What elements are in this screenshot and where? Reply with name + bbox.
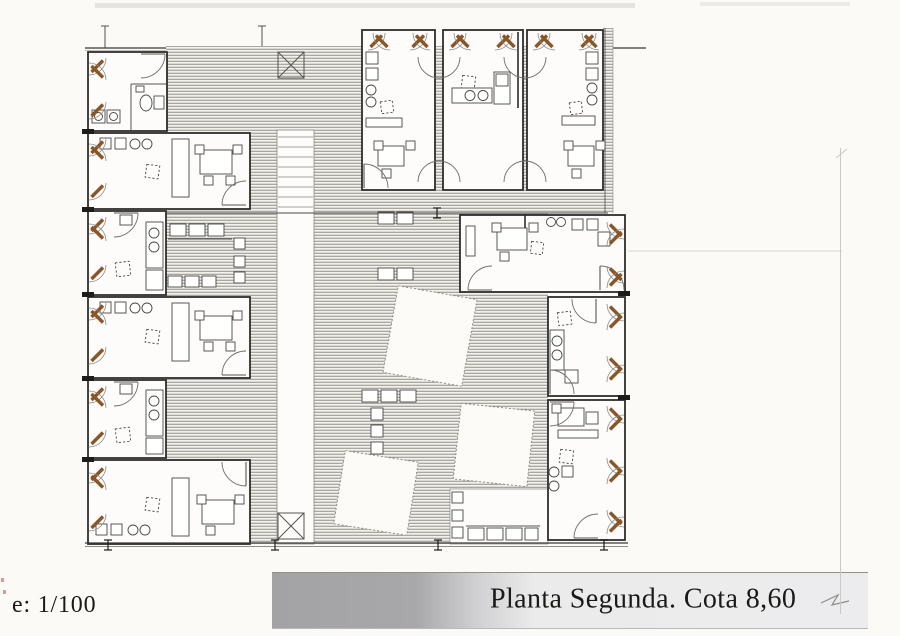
patio-square-2 (453, 403, 535, 486)
title-bar: Planta Segunda. Cota 8,60 (272, 572, 868, 629)
unit-right-3 (548, 400, 625, 540)
patio-square-1 (383, 286, 477, 387)
sheet-title: Planta Segunda. Cota 8,60 (490, 583, 796, 615)
scanned-plan-page: Planta Segunda. Cota 8,60 e: 1/100 (0, 0, 900, 636)
paper-edge-line (840, 148, 841, 614)
revision-zigzag-icon (820, 592, 854, 610)
patio-square-3 (334, 451, 419, 536)
unit-right-2 (548, 297, 625, 396)
scale-label: e: 1/100 (12, 592, 96, 619)
unit-left-5 (88, 380, 166, 458)
unit-left-3 (88, 211, 166, 295)
unit-left-4 (88, 297, 250, 378)
floor-plan-drawing (0, 0, 900, 636)
stair-corridor (277, 130, 314, 544)
unit-left-2 (88, 133, 250, 209)
unit-left-6 (88, 460, 250, 544)
bench-area-bottom (450, 489, 548, 544)
unit-right-1 (460, 215, 625, 292)
unit-left-1 (88, 52, 167, 131)
unit-top-1 (362, 30, 435, 190)
